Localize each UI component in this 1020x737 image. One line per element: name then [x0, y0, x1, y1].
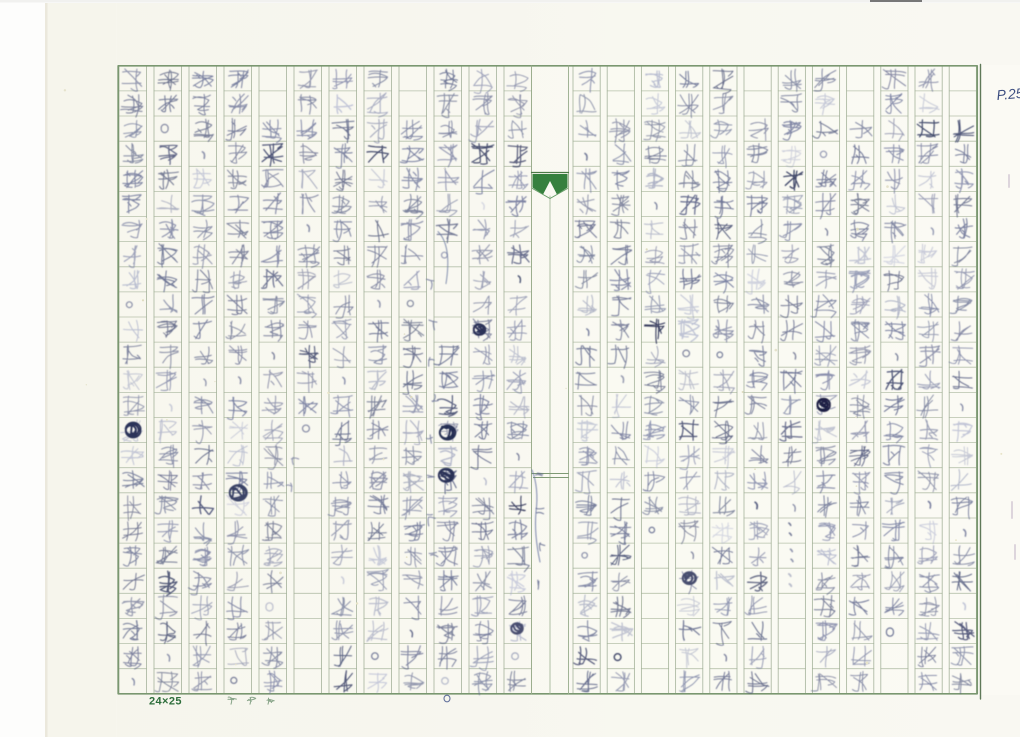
svg-text:P.25: P.25 — [996, 85, 1020, 103]
svg-text:24×25: 24×25 — [149, 696, 182, 708]
